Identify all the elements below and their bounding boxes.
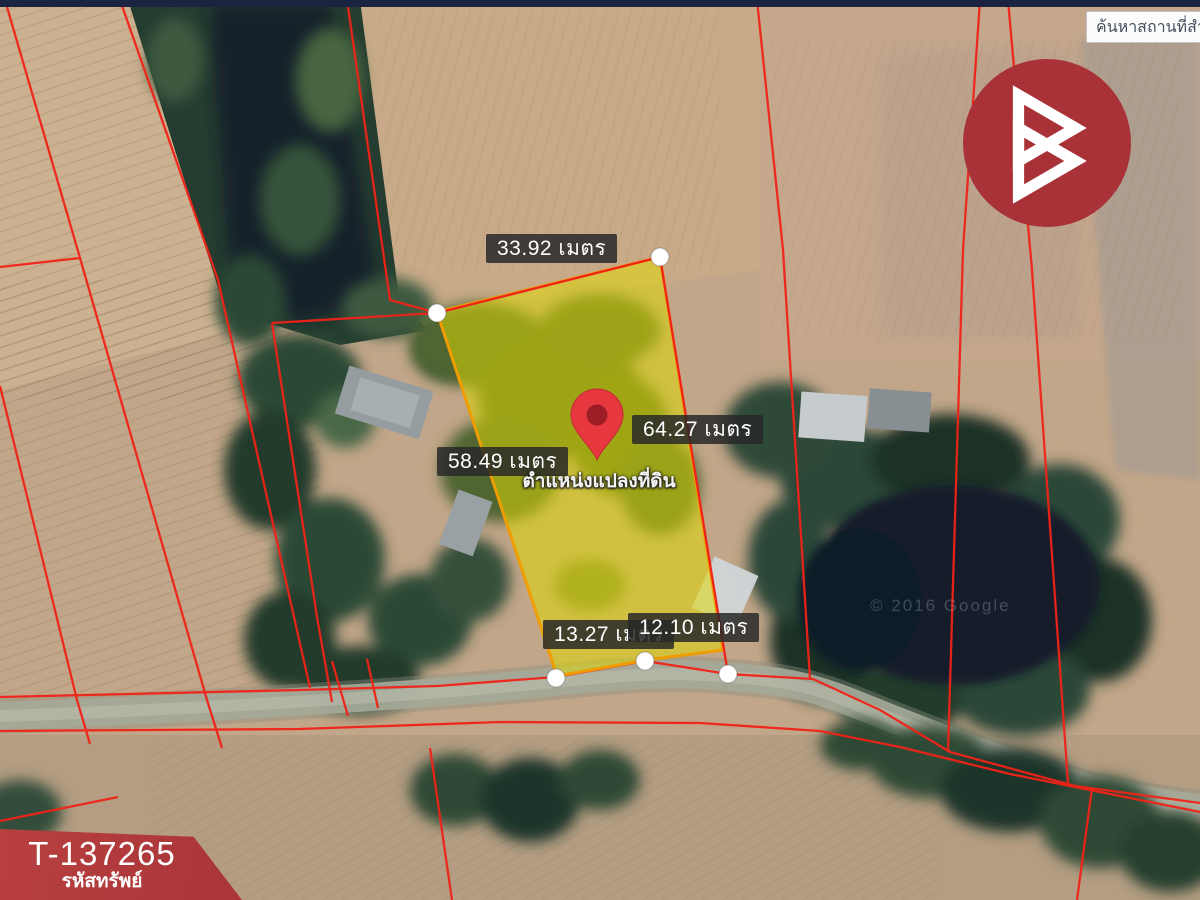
property-map-screenshot: 33.92 เมตร 64.27 เมตร 58.49 เมตร 13.27 เ… <box>0 0 1200 900</box>
brand-logo <box>963 59 1131 227</box>
measurement-label-top: 33.92 เมตร <box>486 234 617 263</box>
vertex-marker <box>428 304 446 322</box>
measurement-label-right: 64.27 เมตร <box>632 415 763 444</box>
property-code-label: รหัสทรัพย์ <box>0 871 204 893</box>
plow-texture <box>380 10 720 270</box>
top-navy-bar <box>0 0 1200 7</box>
brand-b-icon <box>972 68 1122 218</box>
measurement-label-bottom-right: 12.10 เมตร <box>628 613 759 642</box>
search-input[interactable] <box>1086 11 1200 43</box>
pin-caption: ตำแหน่งแปลงที่ดิน <box>519 466 679 496</box>
vertex-marker <box>636 652 654 670</box>
vertex-marker <box>719 665 737 683</box>
vertex-marker <box>547 669 565 687</box>
property-code: T-137265 <box>0 837 204 871</box>
vertex-marker <box>651 248 669 266</box>
map-watermark: © 2016 Google <box>870 596 1011 616</box>
